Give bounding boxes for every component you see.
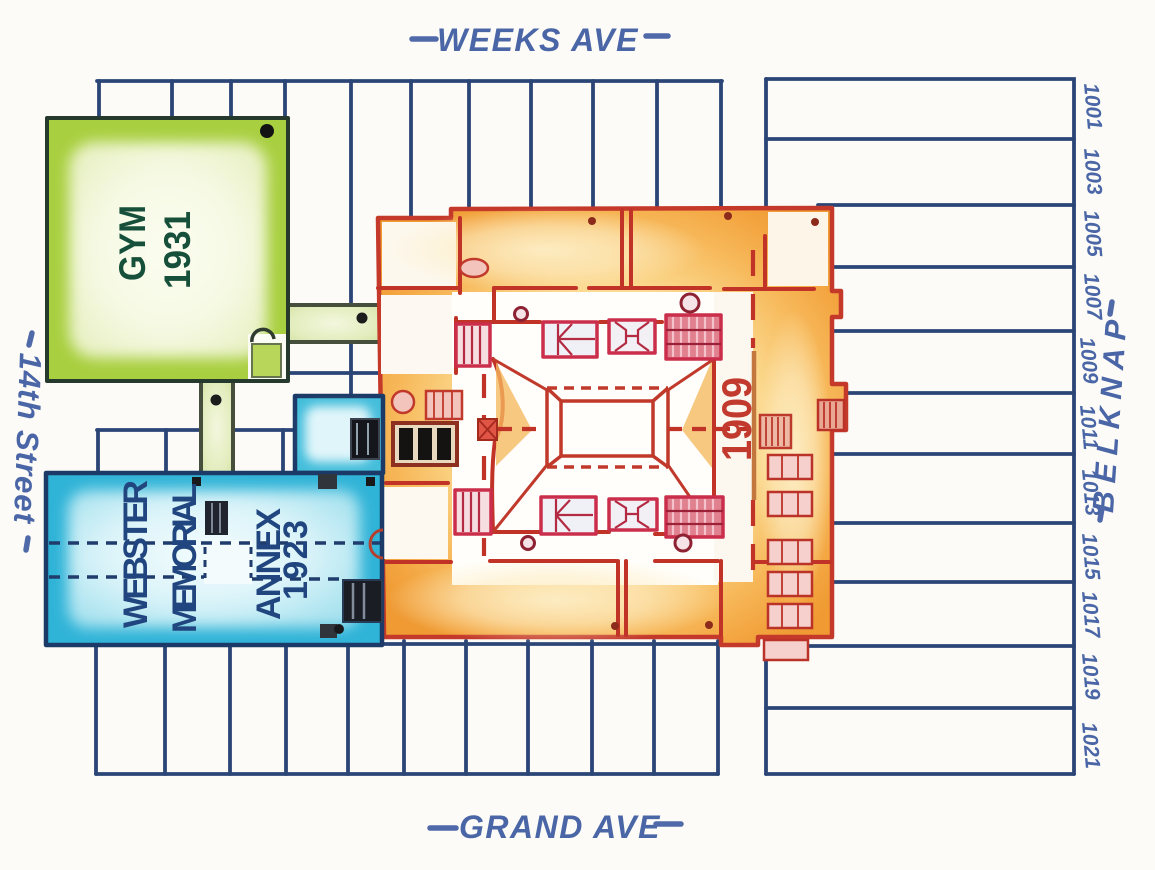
svg-text:WEBSTER: WEBSTER xyxy=(117,480,155,628)
svg-text:1923: 1923 xyxy=(277,520,315,600)
svg-text:1021: 1021 xyxy=(1077,721,1104,770)
svg-text:1019: 1019 xyxy=(1077,652,1104,701)
svg-text:MEMORIAL: MEMORIAL xyxy=(166,483,204,633)
svg-text:1011: 1011 xyxy=(1075,404,1102,451)
svg-text:1015: 1015 xyxy=(1077,532,1104,581)
svg-text:14th Street: 14th Street xyxy=(7,352,48,525)
svg-text:1001: 1001 xyxy=(1079,82,1106,131)
svg-text:GRAND AVE: GRAND AVE xyxy=(459,809,661,845)
svg-text:GYM: GYM xyxy=(112,205,153,281)
svg-text:1007: 1007 xyxy=(1079,272,1106,322)
svg-text:1931: 1931 xyxy=(157,211,198,289)
svg-text:WEEKS AVE: WEEKS AVE xyxy=(437,22,639,58)
svg-text:1013: 1013 xyxy=(1077,468,1104,517)
svg-text:1003: 1003 xyxy=(1079,147,1106,196)
svg-text:1005: 1005 xyxy=(1079,209,1106,258)
svg-text:1009: 1009 xyxy=(1075,336,1102,385)
svg-text:1909: 1909 xyxy=(713,377,760,461)
svg-text:1017: 1017 xyxy=(1077,590,1104,640)
